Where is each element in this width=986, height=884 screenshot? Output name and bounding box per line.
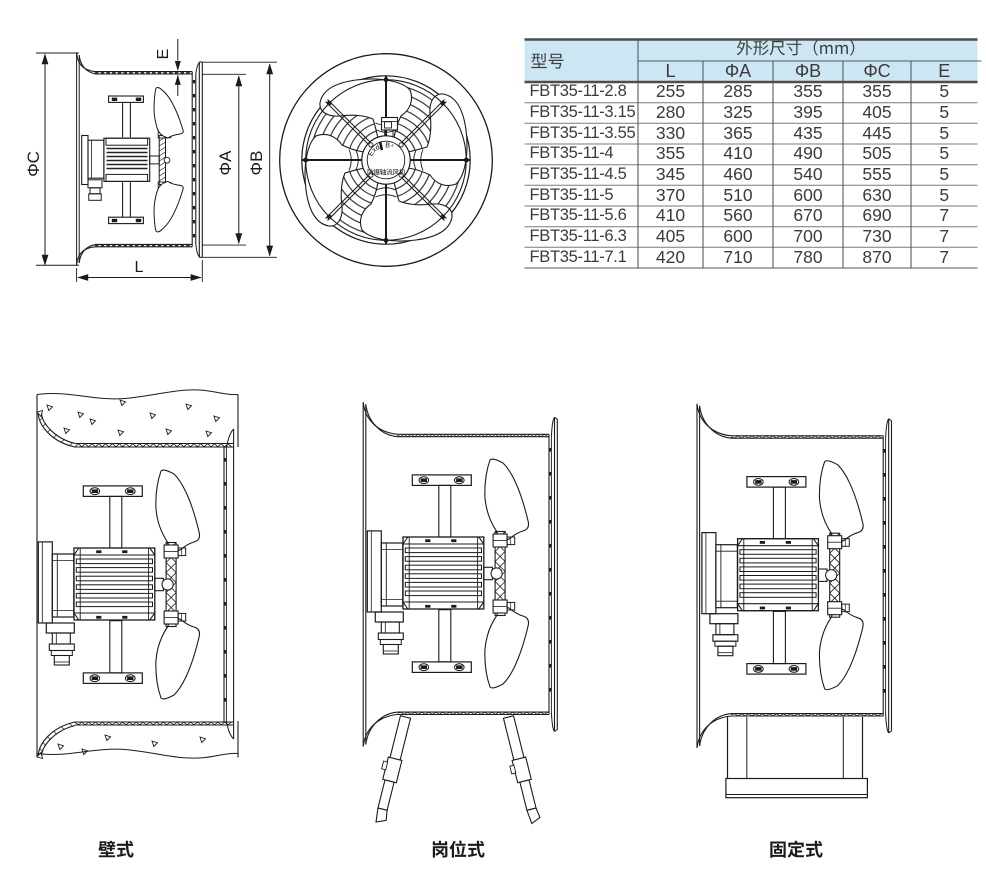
svg-text:ΦC: ΦC (24, 151, 43, 177)
svg-text:ΦA: ΦA (216, 150, 235, 176)
svg-text:ΦB: ΦB (247, 151, 266, 176)
svg-text:E: E (155, 49, 172, 60)
svg-text:L: L (135, 259, 144, 276)
